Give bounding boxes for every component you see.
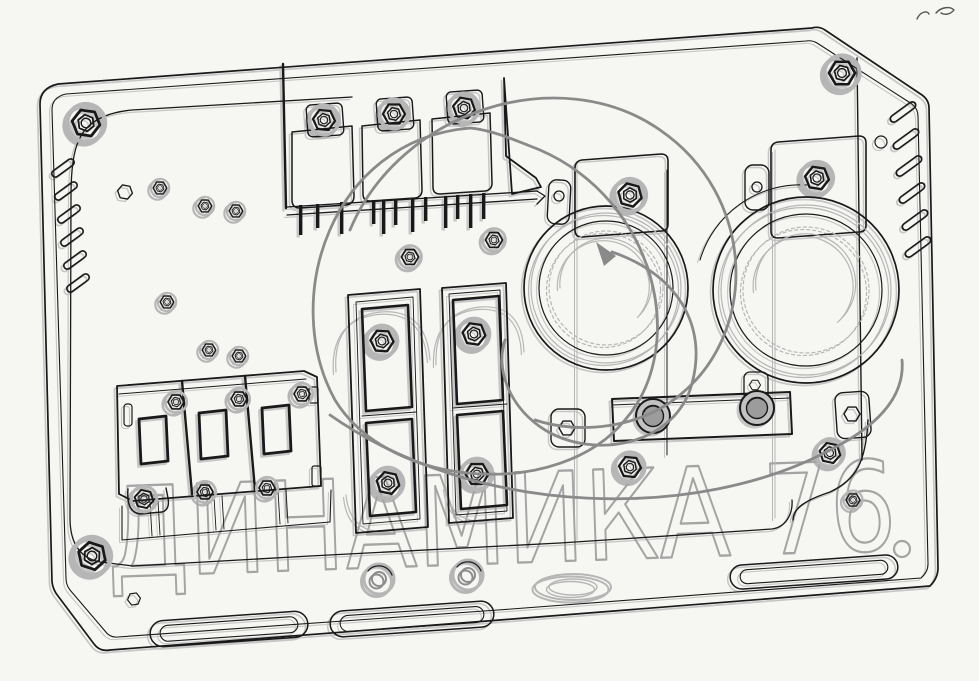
diagram-page: ДИНАМИКА 76 — [0, 0, 979, 681]
signature-mark — [917, 8, 954, 19]
panel-line-drawing: ДИНАМИКА 76 — [0, 0, 979, 681]
